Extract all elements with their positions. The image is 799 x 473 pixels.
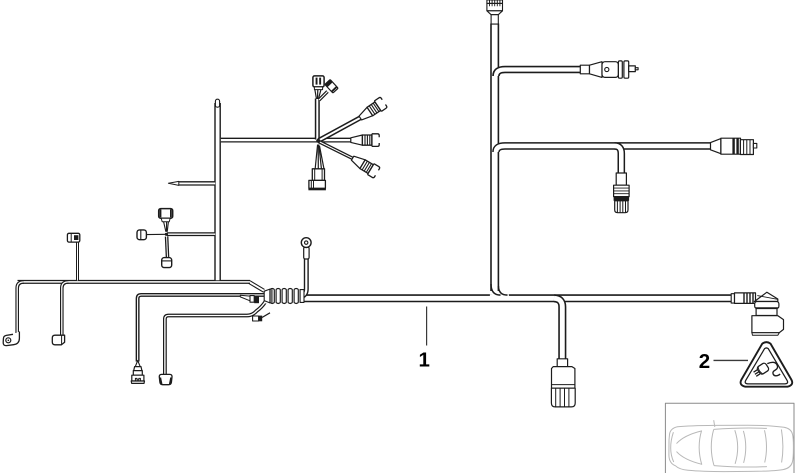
svg-text:2: 2 — [699, 350, 710, 373]
svg-text:1: 1 — [419, 349, 430, 372]
